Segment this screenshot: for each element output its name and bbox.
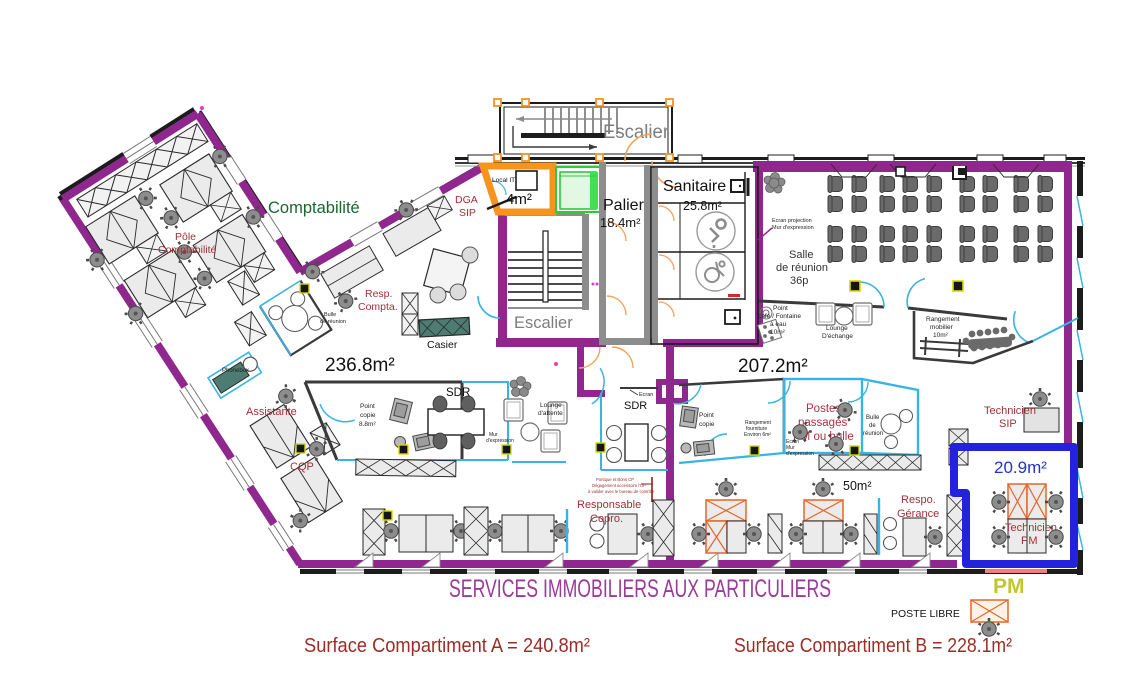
svg-text:CQP: CQP [290, 461, 314, 473]
svg-text:PM: PM [1021, 535, 1038, 547]
svg-text:Escalier: Escalier [514, 314, 573, 332]
svg-text:Respo.: Respo. [901, 494, 936, 506]
svg-text:Point: Point [699, 412, 714, 419]
svg-text:Point: Point [773, 305, 788, 312]
svg-text:Technicien: Technicien [984, 405, 1036, 417]
svg-text:à valider avec le bureau de co: à valider avec le bureau de contrôle [588, 489, 655, 494]
svg-text:mobilier: mobilier [930, 324, 954, 331]
svg-text:Surface Compartiment B = 228.1: Surface Compartiment B = 228.1m² [734, 635, 1012, 657]
svg-text:d'attente: d'attente [538, 410, 563, 417]
svg-text:Compta.: Compta. [358, 301, 398, 313]
svg-text:copie: copie [360, 412, 376, 419]
svg-text:10m²: 10m² [933, 332, 949, 339]
svg-text:Copro.: Copro. [590, 513, 623, 525]
svg-text:Salle: Salle [789, 249, 813, 261]
svg-text:Portique et Bons CP: Portique et Bons CP [596, 477, 634, 482]
svg-text:8.8m²: 8.8m² [359, 421, 376, 428]
svg-text:SDR: SDR [624, 400, 647, 412]
svg-text:Dégagement accessoire l'UP: Dégagement accessoire l'UP [592, 483, 646, 488]
svg-text:SIP: SIP [999, 418, 1017, 430]
svg-text:Resp.: Resp. [365, 288, 392, 300]
svg-text:copie: copie [699, 421, 715, 428]
svg-text:25.8m²: 25.8m² [683, 199, 722, 213]
svg-text:PM: PM [993, 575, 1025, 598]
svg-text:Comptabilité: Comptabilité [158, 244, 217, 256]
svg-text:Environ 6m²: Environ 6m² [744, 432, 771, 438]
svg-text:SIP: SIP [459, 207, 476, 219]
svg-text:36p: 36p [790, 275, 808, 287]
svg-text:Surface Compartiment A = 240.8: Surface Compartiment A = 240.8m² [304, 635, 590, 657]
svg-text:Ecran: Ecran [639, 392, 653, 398]
svg-text:d'expression: d'expression [486, 438, 514, 444]
svg-text:Comptabilité: Comptabilité [268, 199, 360, 217]
svg-text:réunion: réunion [863, 431, 883, 437]
svg-text:SERVICES IMMOBILIERS AUX PARTI: SERVICES IMMOBILIERS AUX PARTICULIERS [449, 575, 831, 603]
svg-text:café / Fontaine: café / Fontaine [758, 313, 801, 320]
svg-text:d'expression: d'expression [786, 451, 814, 457]
svg-text:Lounge: Lounge [826, 325, 848, 332]
svg-text:20.9m²: 20.9m² [994, 458, 1047, 477]
svg-text:Assistante: Assistante [246, 406, 297, 418]
svg-text:de réunion: de réunion [776, 262, 828, 274]
svg-text:de réunion: de réunion [320, 319, 346, 325]
svg-text:Gérance: Gérance [897, 508, 939, 520]
svg-text:Mur d'expression: Mur d'expression [772, 225, 814, 231]
svg-text:236.8m²: 236.8m² [325, 355, 395, 376]
svg-text:Point: Point [360, 403, 375, 410]
svg-text:4m²: 4m² [506, 191, 532, 208]
svg-text:Pôle: Pôle [175, 231, 196, 243]
svg-text:D'échange: D'échange [822, 333, 853, 340]
svg-text:à eau: à eau [770, 321, 787, 328]
svg-text:18.4m²: 18.4m² [600, 215, 641, 230]
svg-text:Sanitaire: Sanitaire [663, 178, 726, 195]
svg-text:50m²: 50m² [843, 479, 871, 493]
svg-text:Technicien: Technicien [1005, 522, 1057, 534]
svg-text:207.2m²: 207.2m² [738, 356, 808, 377]
svg-text:DGA: DGA [455, 194, 478, 206]
svg-text:POSTE LIBRE: POSTE LIBRE [891, 608, 960, 620]
svg-text:Bulle: Bulle [324, 312, 336, 318]
svg-text:Bulle: Bulle [866, 415, 880, 421]
svg-text:Casier: Casier [427, 339, 458, 351]
svg-text:Ecran projection: Ecran projection [772, 218, 812, 224]
svg-text:Rangement: Rangement [926, 316, 960, 323]
svg-text:Phonebox: Phonebox [222, 368, 249, 374]
svg-text:Local IT: Local IT [492, 177, 515, 184]
svg-text:Palier: Palier [603, 197, 645, 214]
svg-text:Lounge: Lounge [540, 402, 562, 409]
svg-text:10m²: 10m² [770, 329, 786, 336]
svg-text:Responsable: Responsable [577, 499, 641, 511]
svg-text:de: de [869, 423, 876, 429]
